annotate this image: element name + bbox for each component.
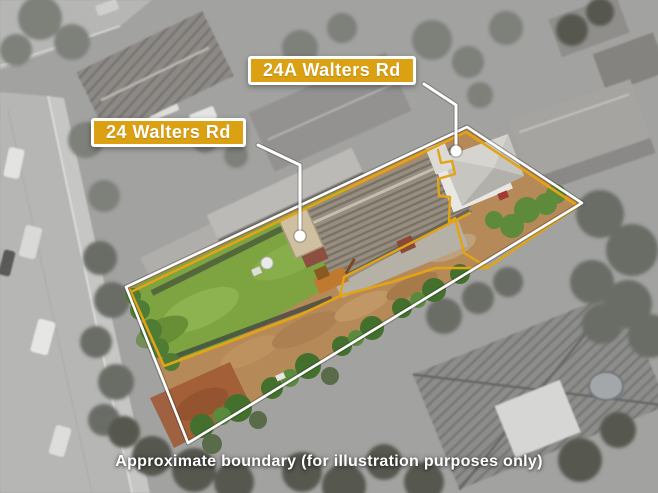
property-label-24: 24 Walters Rd [91, 118, 246, 147]
property-label-24a: 24A Walters Rd [248, 56, 416, 85]
water-tank-neighbour [589, 372, 623, 400]
aerial-property-photo: 24A Walters Rd 24 Walters Rd Approximate… [0, 0, 658, 493]
boundary-marker-dot-24 [295, 231, 306, 242]
white-tank [261, 257, 273, 269]
boundary-disclaimer-caption: Approximate boundary (for illustration p… [84, 453, 574, 471]
property-label-24-text: 24 Walters Rd [106, 122, 231, 142]
property-label-24a-text: 24A Walters Rd [263, 60, 401, 80]
boundary-marker-dot-24a [451, 146, 462, 157]
